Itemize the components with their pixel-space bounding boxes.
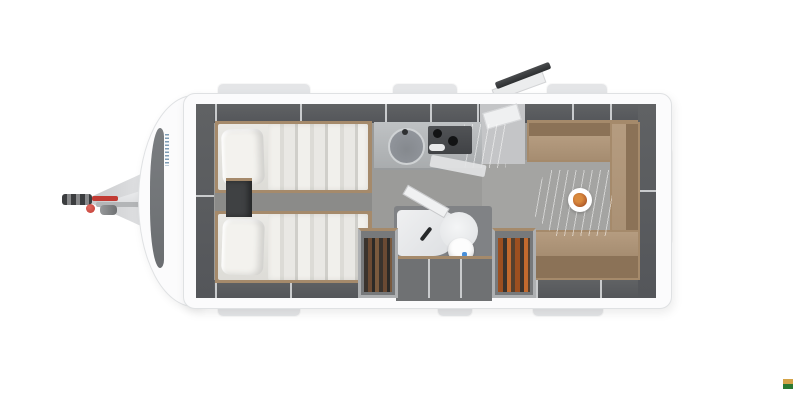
watermark-mark [783,379,793,389]
hitch-handle-red [92,196,118,201]
cabinet-divider [460,259,462,298]
locker-band-rear [638,104,656,298]
dinette-wall-trim [527,120,638,123]
bed-bottom-pillow [221,218,265,275]
sink-faucet [402,129,408,135]
bed-top-blanket [268,124,368,190]
locker-divider [536,280,538,298]
caravan-floorplan [0,0,800,400]
locker-divider [430,104,432,123]
wardrobe-left-clothes [364,238,392,292]
locker-divider [477,104,479,123]
bed-bottom-blanket [268,214,368,280]
locker-divider [385,104,387,123]
locker-band-front [196,104,214,298]
cooktop-burner-1 [433,129,442,138]
locker-divider [638,190,656,192]
locker-divider [196,195,214,197]
dinette-bench-top-backrest [529,122,614,136]
cabinet-divider [428,259,430,298]
dinette-bench-top-seat [529,136,614,160]
plate-food [573,193,587,207]
watermark-green-half [783,384,793,389]
bathroom-cabinets [396,256,492,301]
hitch-knob-red [86,204,95,213]
brand-text-strip [165,134,169,166]
jockey-wheel [100,205,117,215]
locker-divider [600,280,602,298]
wardrobe-right-clothes [498,238,530,292]
nightstand [226,178,252,217]
cooktop-handle [429,144,445,151]
headboard-trim [215,121,372,124]
hitch-coupler [62,194,92,205]
front-window [150,128,164,268]
cooktop-burner-2 [448,136,458,146]
